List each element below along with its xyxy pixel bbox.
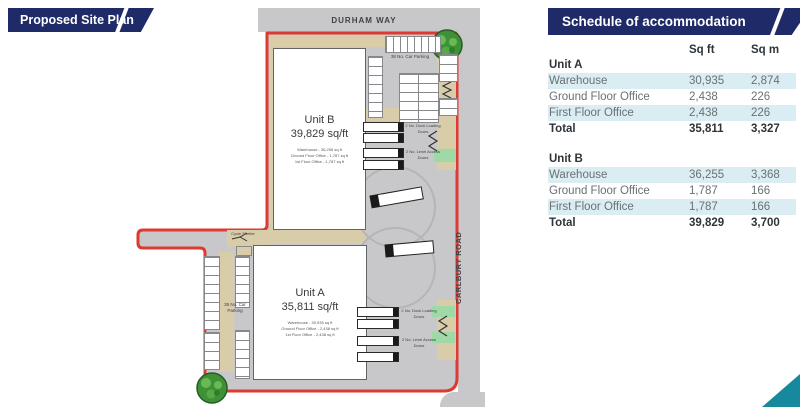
level-access-doors-label: 2 No. Level Access Doors (404, 149, 442, 160)
row-label: First Floor Office (549, 201, 689, 213)
dock-loading-doors-label: 2 No. Dock Loading Doors (404, 123, 442, 134)
unit-b-name: Unit B (305, 114, 335, 126)
row-label: Total (549, 123, 689, 135)
parking-bays (418, 73, 439, 123)
unit-a-name: Unit A (295, 287, 324, 299)
row-sqft: 39,829 (689, 217, 751, 229)
cycle-shelter-label: Cycle Shelter (227, 231, 259, 237)
row-sqft: 1,787 (689, 201, 751, 213)
dock-door-end (398, 134, 403, 142)
col-header-sqm: Sq m (751, 44, 797, 56)
level-access-doors-label: 2 No. Level Access Doors (400, 337, 438, 348)
dock-door-end (398, 161, 403, 169)
building-unit-a: Unit A 35,811 sq/ft Warehouse - 30,935 s… (253, 245, 367, 380)
row-sqm: 3,700 (751, 217, 797, 229)
unit-a-detail-line: 1st Floor Office - 2,438 sq ft (281, 332, 338, 338)
schedule-title-banner: Schedule of accommodation (548, 8, 800, 35)
dock-door (357, 336, 399, 346)
dock-door (363, 160, 404, 170)
section-header-unit-b: Unit B (548, 151, 796, 167)
unit-b-detail-line: Ground Floor Office - 1,787 sq ft (291, 153, 348, 159)
row-label: Ground Floor Office (549, 185, 689, 197)
unit-b-details: Warehouse - 36,255 sq ft Ground Floor Of… (291, 147, 348, 165)
row-sqm: 166 (751, 201, 797, 213)
dock-door (357, 352, 399, 362)
parking-bays (235, 330, 250, 379)
table-row: Ground Floor Office 2,438 226 (548, 89, 796, 105)
row-sqft: 1,787 (689, 185, 751, 197)
parking-bays (439, 54, 458, 82)
dock-door-end (398, 123, 403, 131)
car-parking-left-label: 35 No. Car Parking (219, 302, 251, 315)
parking-bays (399, 73, 420, 123)
row-sqm: 166 (751, 185, 797, 197)
dock-door-end (393, 337, 398, 345)
parking-bays-top (385, 36, 441, 53)
row-label: Warehouse (549, 75, 689, 87)
section-header-unit-a: Unit A (548, 57, 796, 73)
unit-a-details: Warehouse - 30,935 sq ft Ground Floor Of… (281, 320, 338, 338)
row-sqm: 3,368 (751, 169, 797, 181)
table-row: Warehouse 30,935 2,874 (548, 73, 796, 89)
dock-door-end (398, 149, 403, 157)
dock-door-end (393, 353, 398, 361)
schedule-title: Schedule of accommodation (562, 14, 746, 29)
table-header-row: Sq ft Sq m (548, 42, 796, 57)
row-label: Ground Floor Office (549, 91, 689, 103)
unit-a-section-label: Unit A (549, 59, 689, 71)
table-row: Warehouse 36,255 3,368 (548, 167, 796, 183)
row-sqft: 2,438 (689, 91, 751, 103)
table-row: Ground Floor Office 1,787 166 (548, 183, 796, 199)
parking-bays-west (204, 256, 220, 330)
dock-loading-doors-label: 2 No. Dock Loading Doors (400, 308, 438, 319)
unit-b-area: 39,829 sq/ft (291, 128, 349, 140)
parking-bays (439, 98, 458, 116)
dock-door-end (393, 308, 398, 316)
parking-bays-west (204, 332, 220, 370)
row-sqft: 2,438 (689, 107, 751, 119)
banner-slash-decoration (766, 8, 786, 35)
row-sqm: 226 (751, 107, 797, 119)
table-section-gap (548, 137, 796, 151)
row-sqft: 36,255 (689, 169, 751, 181)
col-header-sqft: Sq ft (689, 44, 751, 56)
road-carlbury-label: CARLBURY ROAD (454, 228, 466, 308)
dock-door (363, 148, 404, 158)
table-row: First Floor Office 2,438 226 (548, 105, 796, 121)
row-sqft: 35,811 (689, 123, 751, 135)
dock-door (363, 133, 404, 143)
parking-bays (235, 256, 250, 308)
corner-triangle-decoration (762, 374, 800, 407)
car-parking-top-label: 38 No. Car Parking (388, 54, 432, 60)
dock-door (357, 307, 399, 317)
table-total-row: Total 35,811 3,327 (548, 121, 796, 137)
row-sqft: 30,935 (689, 75, 751, 87)
dock-door (363, 122, 404, 132)
row-label: First Floor Office (549, 107, 689, 119)
row-sqm: 226 (751, 91, 797, 103)
unit-b-detail-line: Warehouse - 36,255 sq ft (291, 147, 348, 153)
unit-b-section-label: Unit B (549, 153, 689, 165)
row-label: Total (549, 217, 689, 229)
schedule-table: Sq ft Sq m Unit A Warehouse 30,935 2,874… (548, 42, 796, 231)
brochure-page: Proposed Site Plan DURHAM WAY (0, 0, 800, 407)
table-row: First Floor Office 1,787 166 (548, 199, 796, 215)
tree-icon (197, 373, 227, 403)
cycle-shelter (236, 246, 252, 256)
parking-bays (368, 56, 383, 118)
table-total-row: Total 39,829 3,700 (548, 215, 796, 231)
unit-b-detail-line: 1st Floor Office - 1,787 sq ft (291, 159, 348, 165)
unit-a-area: 35,811 sq/ft (282, 301, 339, 313)
dock-door (357, 319, 399, 329)
dock-door-end (393, 320, 398, 328)
row-label: Warehouse (549, 169, 689, 181)
building-unit-b: Unit B 39,829 sq/ft Warehouse - 36,255 s… (273, 48, 366, 230)
row-sqm: 2,874 (751, 75, 797, 87)
row-sqm: 3,327 (751, 123, 797, 135)
